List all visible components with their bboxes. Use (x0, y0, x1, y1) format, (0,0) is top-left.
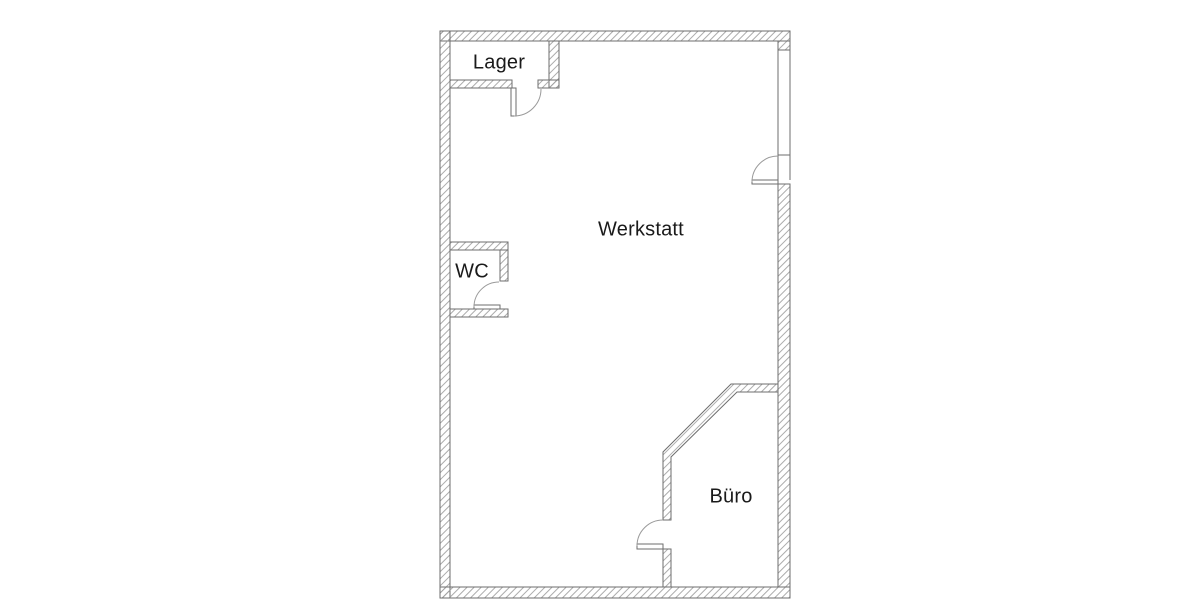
lager-door-swing (514, 89, 541, 116)
room-label-lager: Lager (473, 52, 525, 75)
floor-plan: Lager Werkstatt WC Büro (0, 0, 1200, 600)
wall-outer-right-top-stub (778, 41, 790, 50)
werkstatt-right-window (778, 50, 790, 180)
wall-lager-bottom-left (450, 80, 512, 88)
wall-buero-lower-stub (663, 549, 671, 587)
room-label-wc: WC (455, 261, 489, 284)
wall-wc-right (500, 250, 508, 281)
wall-outer-bottom (440, 587, 790, 598)
room-label-werkstatt: Werkstatt (598, 219, 684, 242)
buero-door-swing (637, 520, 663, 546)
wall-wc-top (450, 242, 508, 250)
wall-outer-top (440, 31, 790, 41)
buero-door-leaf (637, 544, 663, 549)
wall-outer-right-lower (778, 184, 790, 587)
wall-outer-left (440, 31, 450, 598)
wall-lager-bottom-right (538, 80, 559, 88)
lager-door-leaf (511, 88, 516, 116)
wc-door-leaf (474, 305, 500, 309)
floor-plan-drawing (0, 0, 1200, 600)
wc-door-swing (474, 282, 499, 307)
wall-wc-bottom (450, 309, 508, 317)
werkstatt-right-door-swing (752, 156, 778, 182)
werkstatt-right-door-leaf (752, 180, 778, 184)
room-label-buero: Büro (709, 486, 752, 509)
